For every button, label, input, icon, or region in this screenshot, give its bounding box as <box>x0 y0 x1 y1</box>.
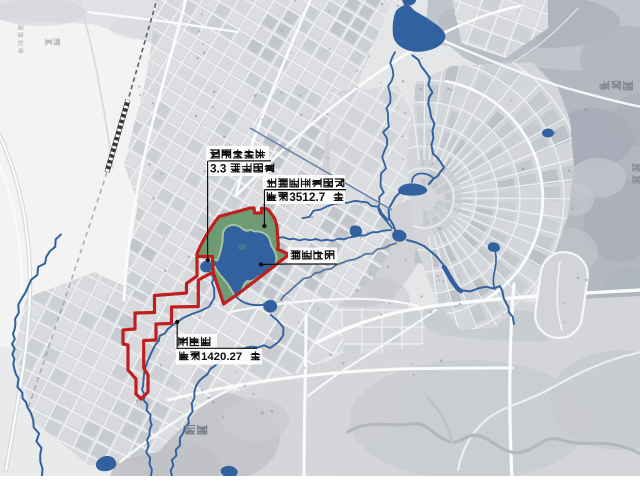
svg-text:3.3: 3.3 <box>210 161 227 175</box>
svg-text:3512.7: 3512.7 <box>289 190 326 204</box>
svg-text:1420.27: 1420.27 <box>201 351 242 363</box>
